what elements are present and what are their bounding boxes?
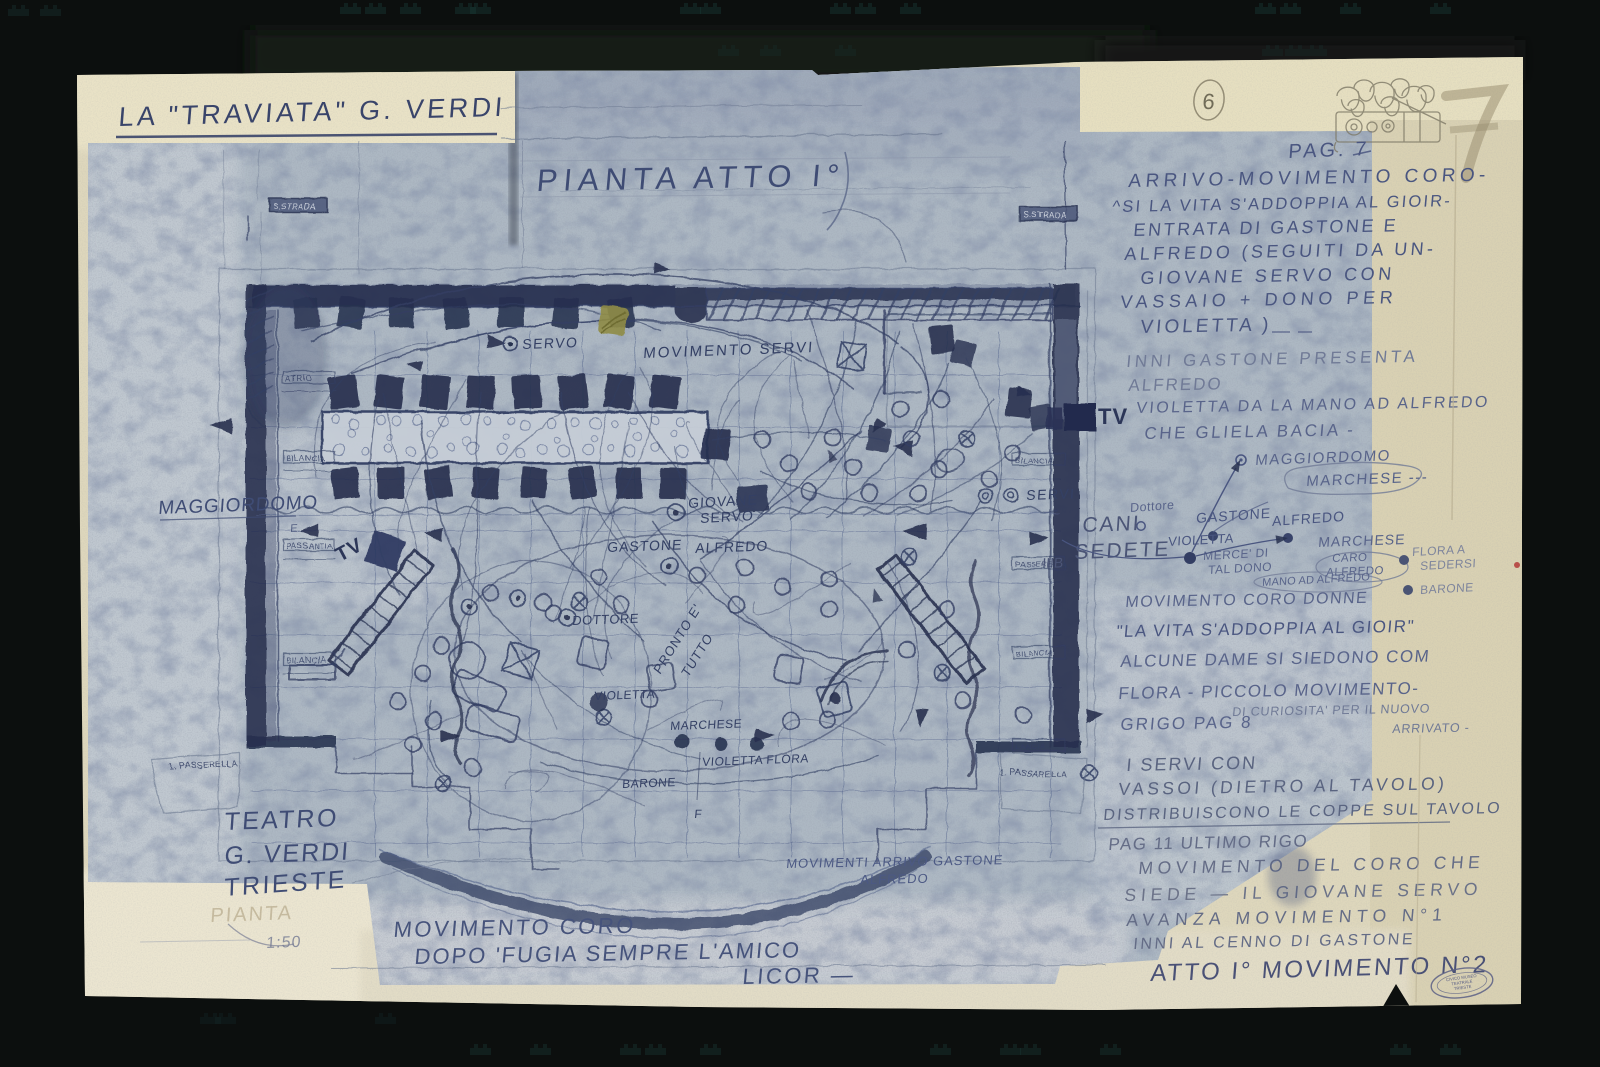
svg-text:VIOLETTA ): VIOLETTA ) [1140, 315, 1273, 338]
svg-text:GRIGO PAG 8: GRIGO PAG 8 [1120, 713, 1254, 734]
svg-text:DOTTORE: DOTTORE [572, 611, 640, 628]
svg-text:GASTONE: GASTONE [607, 536, 683, 555]
svg-text:ALFREDO: ALFREDO [1128, 374, 1224, 395]
svg-text:LANCIA: LANCIA [1015, 741, 1044, 750]
svg-text:CARO: CARO [1332, 552, 1368, 565]
svg-text:BILANCIA: BILANCIA [1015, 648, 1052, 657]
svg-text:PASSANTIA: PASSANTIA [285, 541, 333, 550]
svg-text:PAG. 7: PAG. 7 [1288, 138, 1370, 163]
svg-text:S.STRADA: S.STRADA [272, 201, 316, 210]
svg-text:6: 6 [1202, 89, 1216, 114]
svg-text:BARONE: BARONE [622, 775, 677, 791]
svg-text:ALFREDO: ALFREDO [860, 871, 930, 887]
svg-text:SERVI: SERVI [1026, 485, 1076, 503]
svg-text:VIOLETTA: VIOLETTA [594, 687, 656, 703]
svg-text:E.: E. [290, 523, 301, 535]
svg-text:PIANTA ATTO I°: PIANTA ATTO I° [535, 158, 846, 198]
svg-text:BARONE: BARONE [1420, 580, 1474, 597]
svg-text:SEDERSI: SEDERSI [1420, 556, 1477, 573]
svg-text:ALFREDO: ALFREDO [695, 537, 769, 556]
svg-text:SERVO: SERVO [522, 334, 579, 352]
svg-text:1:50: 1:50 [266, 933, 302, 952]
svg-text:SERVO: SERVO [700, 507, 754, 526]
svg-text:BILANCIA: BILANCIA [285, 655, 325, 664]
svg-text:PIANTA: PIANTA [210, 902, 294, 927]
svg-text:G. VERDI: G. VERDI [224, 838, 352, 870]
svg-text:BILANCIA: BILANCIA [285, 453, 325, 462]
svg-text:F: F [694, 807, 703, 821]
svg-text:PAG 11 ULTIMO RIGO: PAG 11 ULTIMO RIGO [1108, 832, 1309, 854]
svg-text:ATRIO: ATRIO [285, 373, 311, 382]
svg-text:TEATRO: TEATRO [224, 804, 340, 836]
svg-text:IIIB: IIIB [1042, 554, 1064, 571]
svg-text:CANI: CANI [1082, 512, 1142, 537]
svg-text:BILANCIA: BILANCIA [1015, 455, 1052, 464]
svg-text:TV: TV [1098, 404, 1128, 429]
svg-text:MARCHESE: MARCHESE [1318, 531, 1406, 550]
svg-text:CHE GLIELA BACIA -: CHE GLIELA BACIA - [1144, 420, 1357, 443]
svg-text:ARRIVATO -: ARRIVATO - [1392, 721, 1471, 736]
svg-text:MARCHESE: MARCHESE [670, 716, 743, 733]
svg-text:LICOR —: LICOR — [742, 962, 857, 989]
svg-text:S.STRADA: S.STRADA [1022, 210, 1066, 219]
svg-text:I SERVI CON: I SERVI CON [1126, 753, 1258, 775]
svg-text:MOVIMENTO CORO: MOVIMENTO CORO [393, 913, 637, 942]
